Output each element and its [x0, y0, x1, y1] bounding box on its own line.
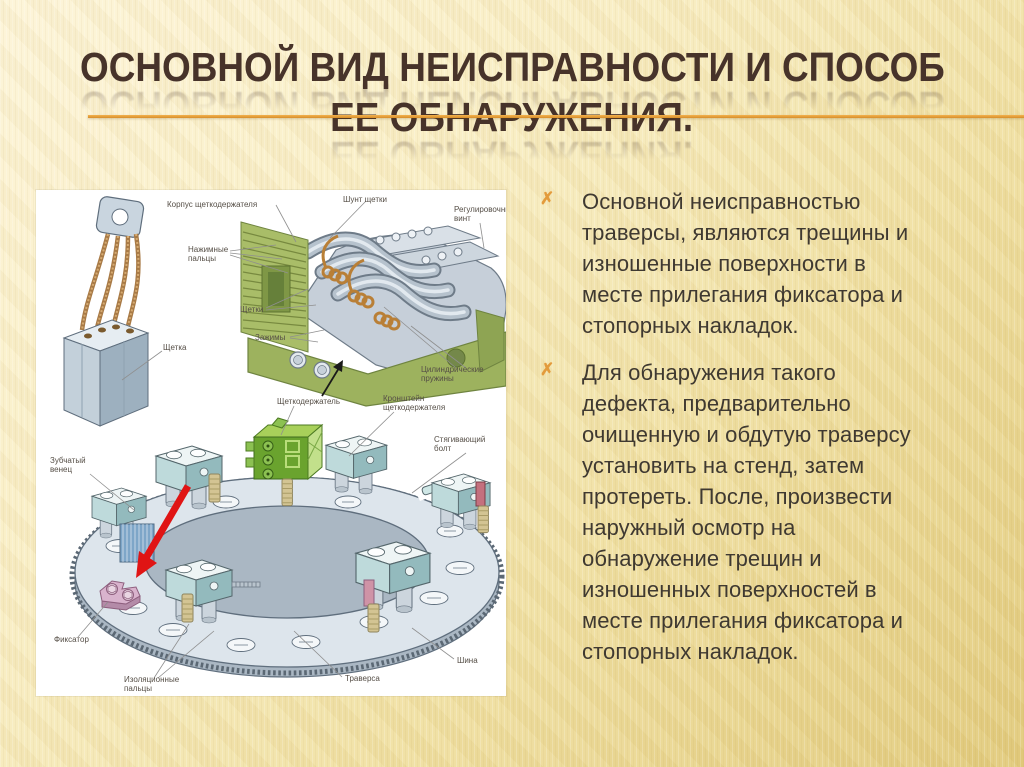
spring-stud: [209, 474, 220, 502]
label-holder: Щеткодержатель: [277, 397, 340, 406]
bullet-text-1: Основной неисправностью траверсы, являют…: [582, 186, 908, 341]
label-nazhim: пальцы: [188, 254, 216, 263]
label-korpus: Корпус щеткодержателя: [167, 200, 257, 209]
bullet-item-1: ✗ Основной неисправностью траверсы, явля…: [530, 186, 1008, 341]
stop-plate: [364, 580, 374, 606]
bullet-text-2: Для обнаружения такого дефекта, предвари…: [582, 357, 911, 667]
label-izol: Изоляционные: [124, 675, 180, 684]
bullet-item-2: ✗ Для обнаружения такого дефекта, предва…: [530, 357, 1008, 667]
side-screw: [232, 582, 260, 587]
label-zubchaty: венец: [50, 465, 72, 474]
label-bolt: Стягивающий: [434, 435, 485, 444]
title-line-1-text: ОСНОВНОЙ ВИД НЕИСПРАВНОСТИ И СПОСОБ: [0, 44, 1024, 90]
label-nazhim: Нажимные: [188, 245, 229, 254]
brush-holder-assembly: [241, 222, 506, 406]
label-pruzhiny: пружины: [421, 374, 454, 383]
stop-plate: [476, 482, 485, 506]
brush-with-cable: [64, 196, 148, 426]
traverse-diagram: Корпус щеткодержателя Шунт щетки Регулир…: [36, 190, 506, 696]
label-fiksator: Фиксатор: [54, 635, 89, 644]
bullet-marker-icon: ✗: [540, 186, 582, 207]
spring-stud: [182, 594, 193, 622]
label-shunt: Шунт щетки: [343, 195, 387, 204]
title-line-1: ОСНОВНОЙ ВИД НЕИСПРАВНОСТИ И СПОСОБ ОСНО…: [0, 44, 1024, 94]
label-shchetki: Щетки: [240, 305, 263, 314]
label-bolt: болт: [434, 444, 452, 453]
slide-title: ОСНОВНОЙ ВИД НЕИСПРАВНОСТИ И СПОСОБ ОСНО…: [0, 44, 1024, 144]
label-kronshtein: Кронштейн: [383, 394, 424, 403]
diagram-panel: Корпус щеткодержателя Шунт щетки Регулир…: [36, 190, 506, 696]
presentation-slide: ОСНОВНОЙ ВИД НЕИСПРАВНОСТИ И СПОСОБ ОСНО…: [0, 0, 1024, 767]
label-kronshtein: щеткодержателя: [383, 403, 445, 412]
label-traversa: Траверса: [345, 674, 380, 683]
label-zazhimy: Зажимы: [255, 333, 286, 342]
label-shchetka: Щетка: [163, 343, 187, 352]
title-line-2: ЕЕ ОБНАРУЖЕНИЯ. ЕЕ ОБНАРУЖЕНИЯ.: [0, 94, 1024, 144]
spring-stud: [368, 604, 379, 632]
brush-block: [64, 320, 148, 426]
bullet-marker-icon: ✗: [540, 357, 582, 378]
spring-stud: [478, 506, 488, 533]
label-zubchaty: Зубчатый: [50, 456, 86, 465]
bullet-list: ✗ Основной неисправностью траверсы, явля…: [530, 186, 1008, 683]
label-pruzhiny: Цилиндрические: [421, 365, 484, 374]
label-izol: пальцы: [124, 684, 152, 693]
label-regulir: винт: [454, 214, 471, 223]
label-regulir: Регулировочный: [454, 205, 506, 214]
title-accent-line: [88, 115, 1024, 118]
label-shina: Шина: [457, 656, 478, 665]
